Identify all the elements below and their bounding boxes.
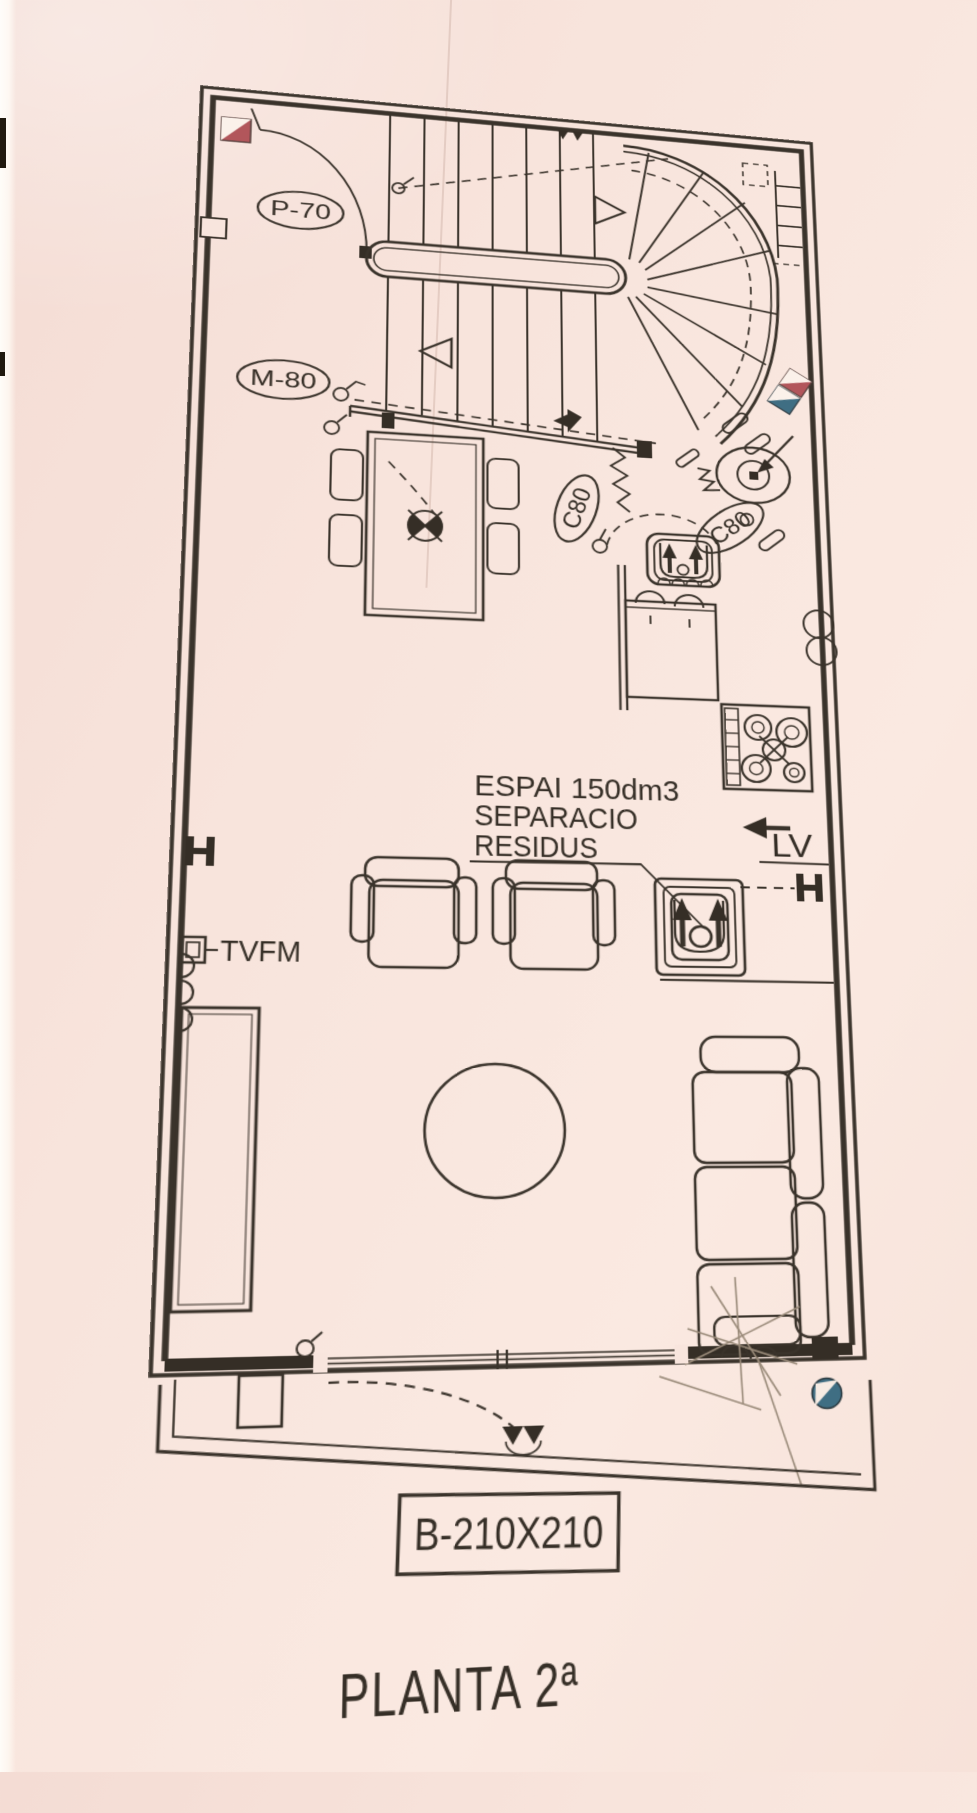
waste-separation: ESPAI 150dm3 SEPARACIO RESIDUS [469,769,826,976]
dishwasher-label: LV [771,826,814,865]
heater-zigzag [611,443,721,517]
hall-opening-tag: M-80 [237,357,330,401]
boundary-dashed [740,887,794,888]
pencil-scribbles [657,1276,806,1491]
scan-edge-mark [0,118,6,168]
window-size-label: B-210X210 [413,1507,603,1560]
dining-table [328,429,519,621]
dining-area: M-80 [229,357,519,622]
pivot-mark [567,409,582,433]
wall-stub [812,1337,839,1360]
wall-mark [572,131,583,141]
corner-pillar-bicolor [768,369,812,415]
wall-anchor-left-icon [185,836,215,866]
window-label-box: B-210X210 [397,1493,619,1574]
armchair [350,857,476,969]
window-pivot-mark [502,1425,544,1455]
ceiling-light-icon [408,510,442,542]
tv-fm-label: TVFM [220,934,302,968]
kitchen-counter [625,590,718,700]
sofa [692,1037,830,1360]
stair-direction-arrow-up [595,197,625,226]
coffee-table [424,1064,565,1199]
site-marker-blue [812,1378,843,1409]
page-title: PLANTA 2ª [338,1650,580,1732]
hall-opening-label: M-80 [250,365,317,394]
window-swing [327,1378,519,1439]
kitchen-boundary [660,980,834,983]
pivot-mark [553,414,567,427]
dishwasher-callout: LV [742,816,828,864]
staircase [350,111,812,468]
living-area: TVFM [160,836,835,1509]
entry-door-tag: P-70 [257,188,344,232]
duct-right-label: C80 [704,506,757,550]
paper-edge [0,0,16,1772]
floor-plan-sheet: P-70 [131,85,908,1813]
washbasin [715,431,795,505]
stair-direction-arrow-down [420,337,451,368]
kitchen-sink-appliance [647,533,720,587]
sideboard [170,1007,259,1312]
stair-hall-boundary [350,395,657,459]
duct-tag-left: C80 [546,470,607,548]
corner-duct [743,163,804,266]
armchair [493,860,616,970]
scan-edge-mark [0,352,5,376]
tv-fm-socket: TVFM [181,934,302,969]
floor-plan-drawing: P-70 [131,85,908,1813]
entry-door-label: P-70 [270,196,331,224]
wall-anchor-right-icon [796,874,823,902]
entry: P-70 [217,106,374,259]
stove [721,704,812,791]
